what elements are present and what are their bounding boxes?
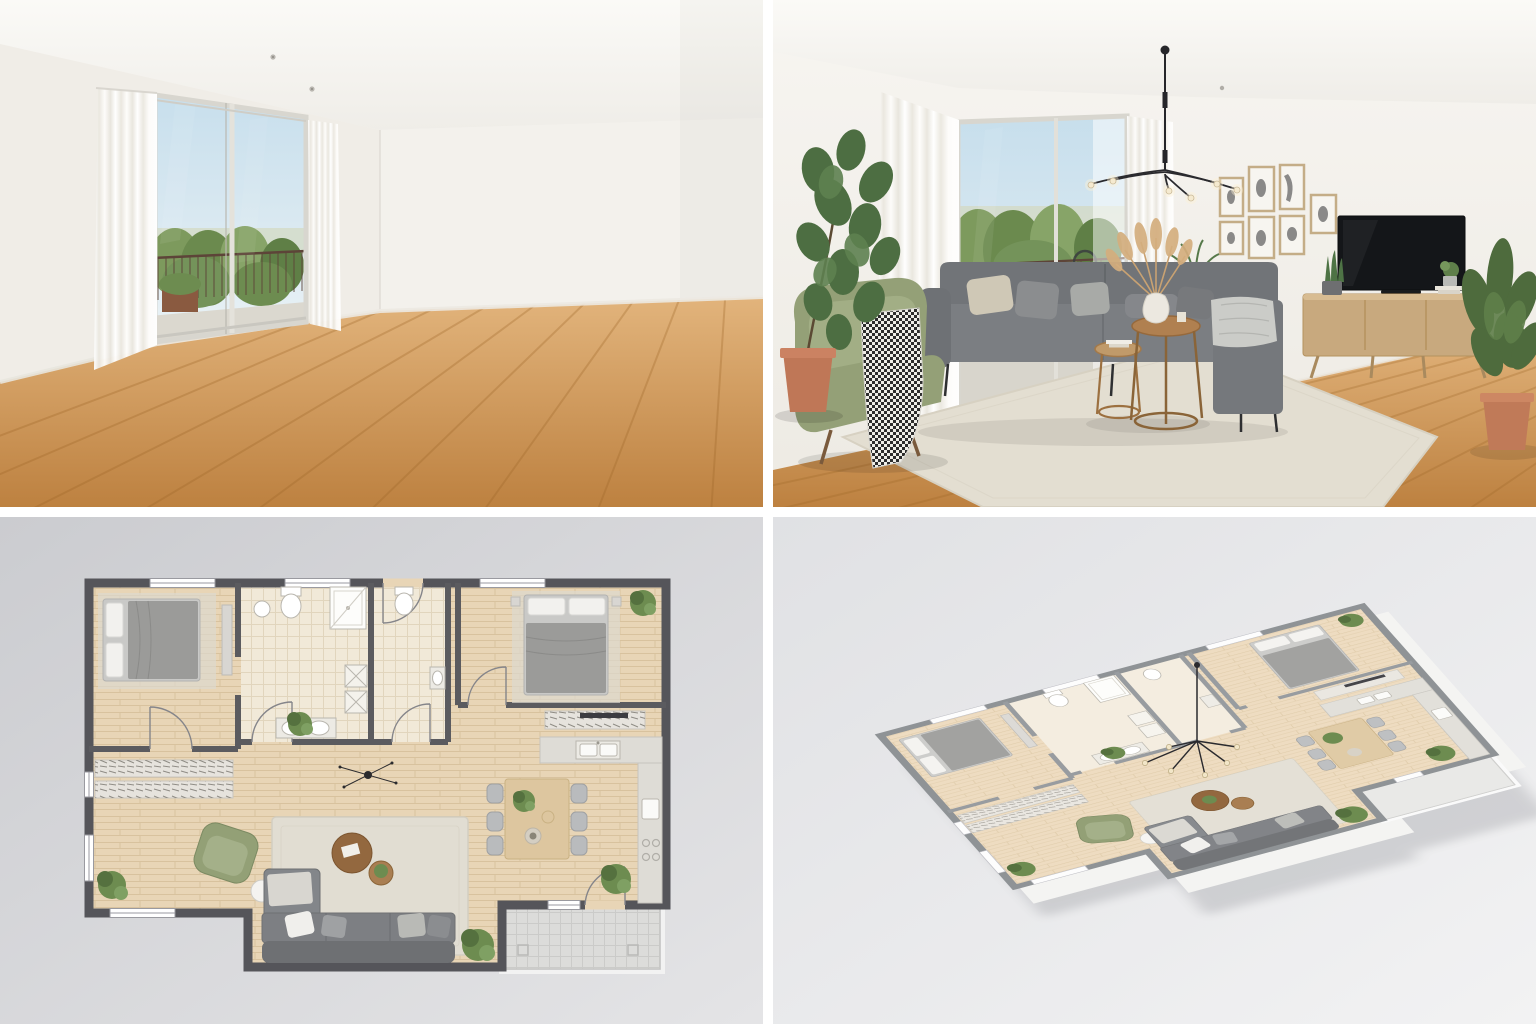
panel-floor-plan-3d: [773, 517, 1536, 1024]
armchair-plan: [1075, 814, 1135, 844]
pillow: [106, 603, 123, 637]
panel-floor-plan-2d: [0, 517, 763, 1024]
table-plant: [513, 790, 535, 812]
entrance-door-gap: [383, 579, 423, 588]
tv-on-plan: [580, 713, 628, 718]
toilet: [281, 587, 301, 618]
round-basin: [254, 601, 270, 617]
terrace-door-gap: [585, 901, 625, 910]
chaise-blanket: [267, 872, 313, 907]
terracotta-pot: [1483, 398, 1531, 450]
nightstand: [511, 597, 520, 606]
dining-set: [487, 779, 587, 859]
pillow: [321, 914, 348, 938]
candle: [1177, 312, 1186, 322]
pillow: [528, 598, 565, 615]
throw-blanket: [1211, 297, 1277, 348]
kitchen-counter-side: [638, 763, 662, 903]
bedroom-1: [98, 593, 232, 689]
tv-stand: [1381, 290, 1421, 294]
floor-plan-2d: [85, 579, 667, 973]
sliding-glass-door: [149, 85, 315, 355]
panel-staged-room-photo: [773, 0, 1536, 507]
sofa-backrest: [262, 941, 455, 963]
pillow: [426, 914, 451, 939]
corner-plant: [630, 590, 656, 616]
kitchen-double-sink: [576, 741, 620, 759]
panel-empty-room-photo: [0, 0, 763, 507]
toilet: [395, 593, 413, 615]
curtain-left: [94, 88, 157, 370]
collage-grid: [0, 0, 1536, 1024]
terrace-planter: [159, 273, 201, 312]
dining-table: [505, 779, 569, 859]
pillow: [106, 643, 123, 677]
table-plant: [374, 864, 388, 878]
nightstand: [612, 597, 621, 606]
pillow: [569, 598, 605, 615]
ceiling-spotlight: [1220, 86, 1224, 90]
dresser: [222, 605, 232, 675]
kitchen-basin: [642, 799, 659, 819]
curtain-right: [308, 120, 341, 331]
stacked-books: [1106, 340, 1132, 344]
media-sideboard: [545, 711, 645, 729]
double-bed: [524, 595, 608, 695]
terrace: [501, 904, 663, 972]
pillow: [397, 913, 426, 939]
duvet: [526, 623, 606, 693]
terracotta-pot: [783, 352, 833, 412]
shower: [330, 587, 366, 629]
double-bed: [103, 599, 200, 681]
